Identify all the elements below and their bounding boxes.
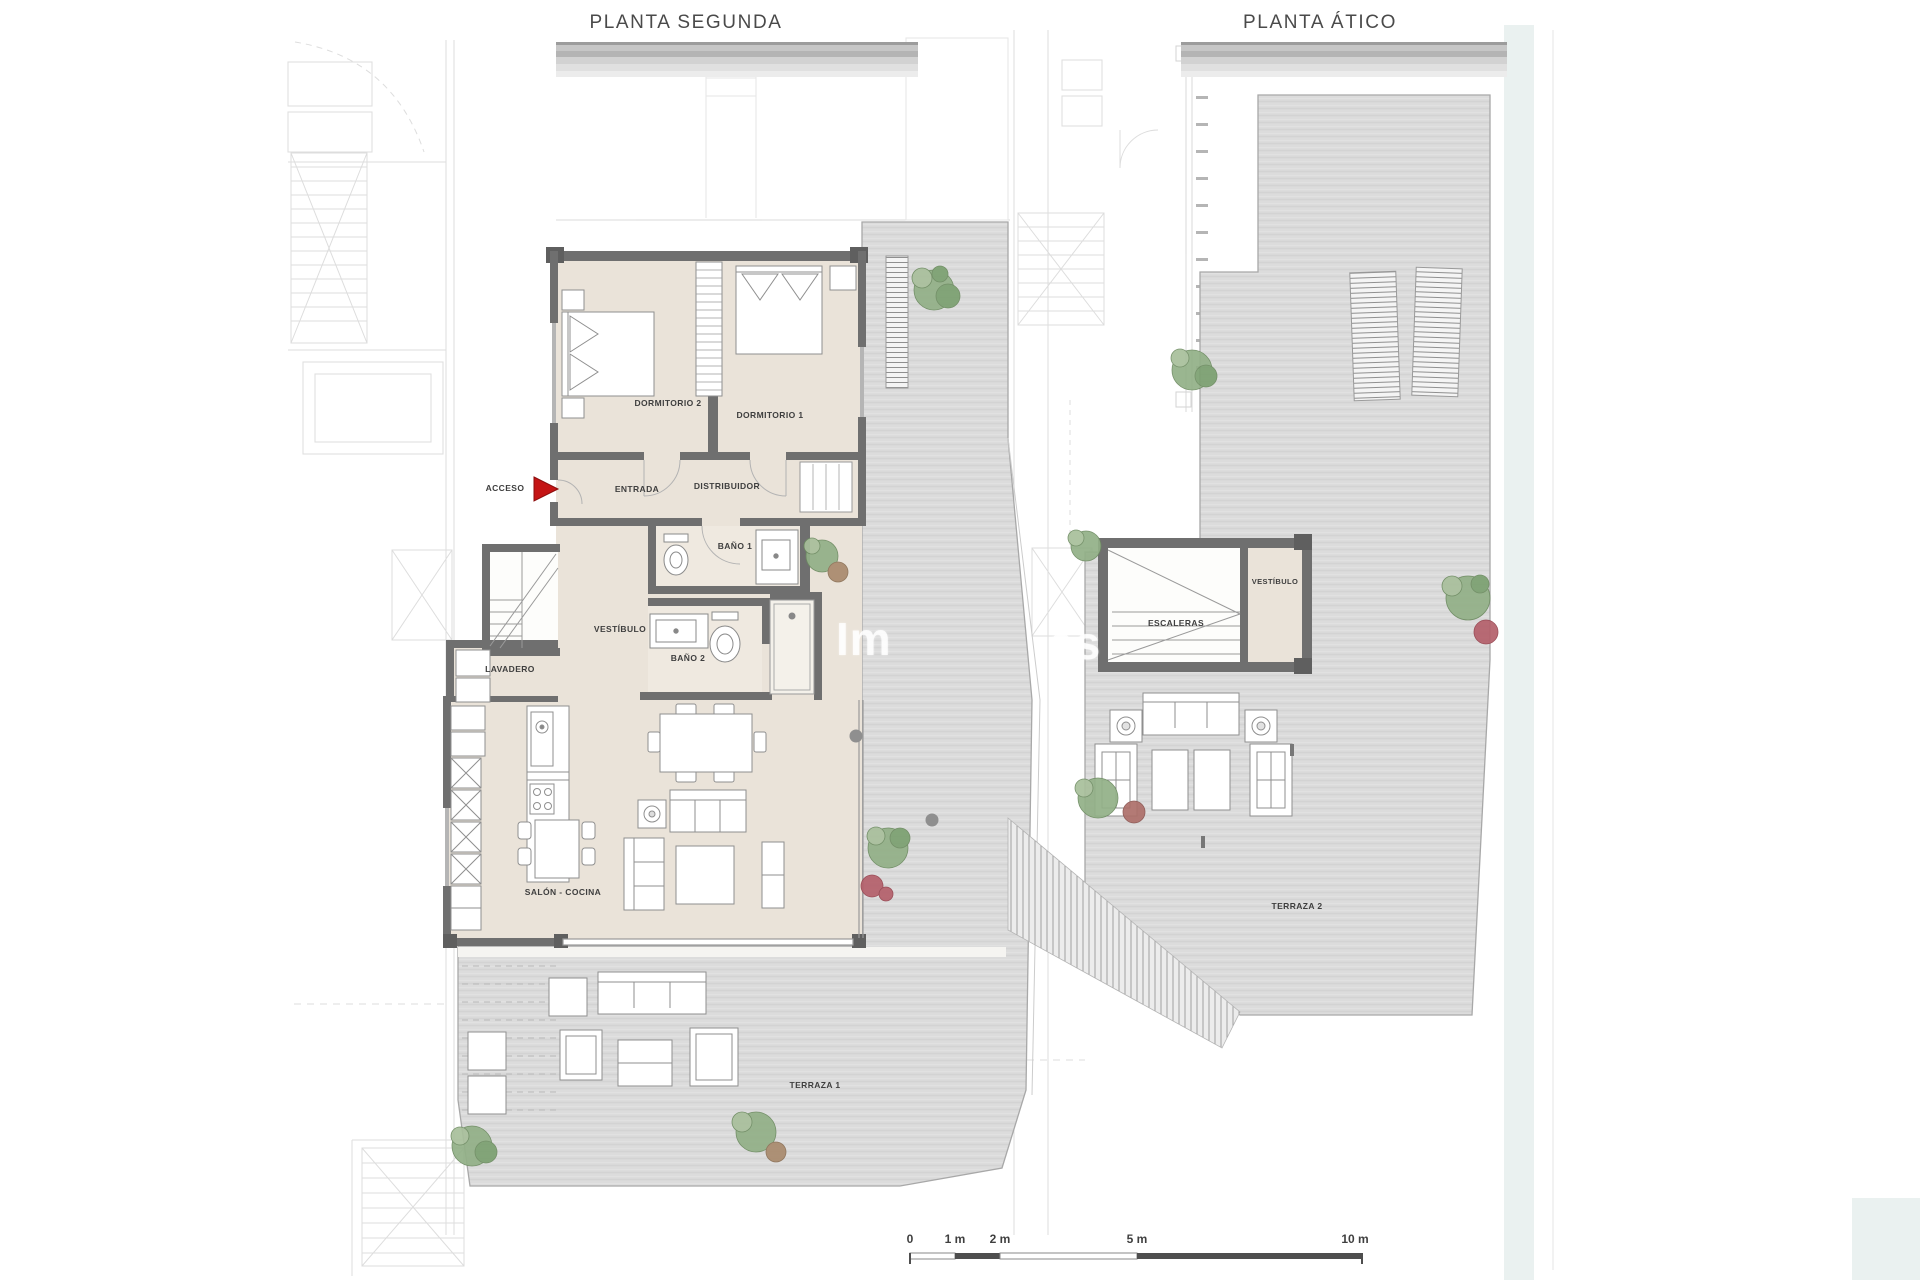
label-salon-cocina: SALÓN - COCINA <box>525 887 601 897</box>
dining-set <box>648 704 766 782</box>
label-dormitorio2: DORMITORIO 2 <box>635 398 702 408</box>
scale-tick-10: 10 m <box>1341 1232 1368 1246</box>
watermark-fragment-right: es <box>1048 616 1101 670</box>
watermark-fragment-left: Im <box>836 612 892 666</box>
label-bano2: BAÑO 2 <box>671 653 706 663</box>
floorplan-drawing <box>0 0 1920 1280</box>
access-arrow <box>534 477 558 501</box>
scale-tick-1: 1 m <box>945 1232 966 1246</box>
label-vestibulo-r: VESTÍBULO <box>1252 577 1299 586</box>
plant <box>1068 530 1101 561</box>
hall-closet <box>800 462 852 512</box>
right-plan-title: PLANTA ÁTICO <box>1243 12 1397 34</box>
scale-tick-0: 0 <box>907 1232 914 1246</box>
label-acceso: ACCESO <box>486 483 525 493</box>
lavadero-machines <box>456 650 490 702</box>
label-lavadero: LAVADERO <box>485 664 535 674</box>
scale-bar <box>910 1253 1362 1264</box>
label-terraza2: TERRAZA 2 <box>1272 901 1323 911</box>
wardrobe-strip <box>696 262 722 396</box>
label-vestibulo-l: VESTÍBULO <box>594 624 646 634</box>
floorplan-sheet: PLANTA SEGUNDA PLANTA ÁTICO ACCESO ENTRA… <box>0 0 1920 1280</box>
right-header-band <box>1181 42 1507 77</box>
side-strips <box>1504 25 1920 1280</box>
balcony-louver <box>886 256 908 388</box>
scale-tick-5: 5 m <box>1127 1232 1148 1246</box>
kitchen-cabinets <box>451 706 485 930</box>
label-dormitorio1: DORMITORIO 1 <box>737 410 804 420</box>
atico-core <box>1098 534 1312 674</box>
label-entrada: ENTRADA <box>615 484 659 494</box>
scale-tick-2: 2 m <box>990 1232 1011 1246</box>
label-terraza1: TERRAZA 1 <box>790 1080 841 1090</box>
label-distribuidor: DISTRIBUIDOR <box>694 481 760 491</box>
left-plan-title: PLANTA SEGUNDA <box>589 12 782 34</box>
left-header-band <box>556 42 918 77</box>
shower <box>770 600 814 694</box>
label-bano1: BAÑO 1 <box>718 541 753 551</box>
label-escaleras: ESCALERAS <box>1148 618 1204 628</box>
